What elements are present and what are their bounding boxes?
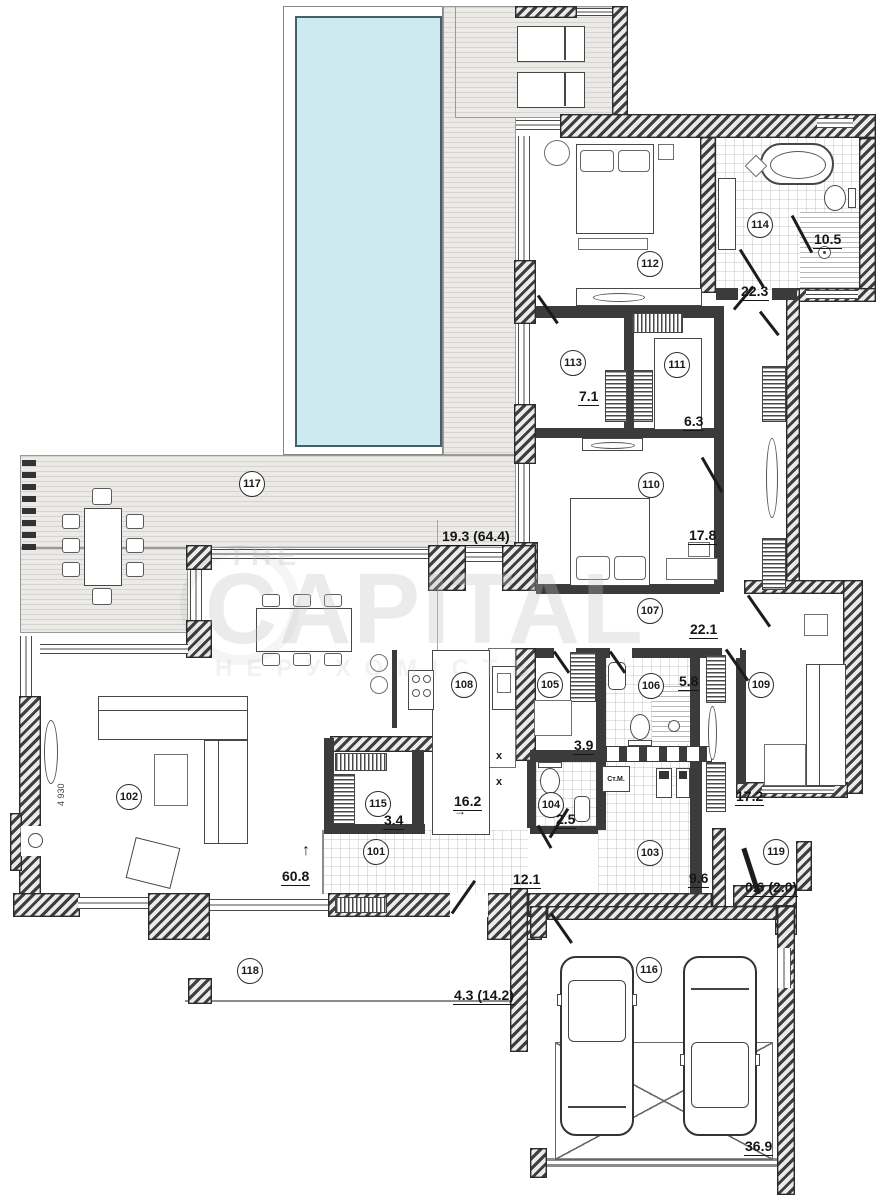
wall-segment — [510, 888, 528, 1052]
wall-segment — [612, 6, 628, 118]
area-label-117: 19.3 (64.4) — [441, 529, 511, 546]
wardrobe-rail — [632, 313, 683, 333]
area-label-116: 36.9 — [744, 1139, 773, 1156]
dining-chair — [324, 653, 342, 666]
room-circle-119: 119 — [763, 839, 789, 865]
window — [190, 570, 202, 620]
dining-chair — [324, 594, 342, 607]
car-cabin — [568, 980, 626, 1042]
wall-segment — [547, 906, 777, 920]
curtain-lens — [44, 720, 58, 784]
wardrobe-rail — [762, 366, 786, 422]
deck-step — [22, 496, 36, 502]
toilet-tank — [538, 762, 562, 768]
area-label-103: 9.6 — [688, 871, 709, 888]
wardrobe-rail — [335, 753, 387, 771]
car-mirror — [557, 994, 562, 1006]
window — [212, 549, 428, 559]
armchair — [126, 837, 181, 889]
window — [577, 8, 612, 16]
dining-chair — [262, 653, 280, 666]
wall-segment — [515, 6, 577, 18]
wardrobe-rail — [706, 762, 726, 812]
wall-segment — [744, 580, 848, 594]
mirror-lens — [708, 706, 717, 760]
pillow — [580, 150, 614, 172]
outdoor-chair — [92, 488, 112, 505]
appliance-mark: x — [496, 776, 508, 790]
wardrobe-rail — [570, 652, 596, 702]
fireplace-niche — [21, 826, 53, 856]
area-label-110: 17.8 — [688, 528, 717, 545]
dining-chair — [293, 653, 311, 666]
wall-segment — [19, 696, 41, 900]
mirror-lens — [593, 293, 645, 302]
wardrobe-rail — [605, 370, 627, 422]
area-label-112: 22.3 — [740, 284, 769, 301]
drain-dot — [823, 251, 826, 254]
wall-segment — [700, 137, 716, 293]
wall-segment — [188, 978, 212, 1004]
wardrobe-rail — [333, 774, 355, 824]
entry-arrow-icon: ↑ — [302, 842, 310, 860]
dimension-label: 4 930 — [56, 783, 66, 806]
room-circle-116: 116 — [636, 957, 662, 983]
car-mirror — [680, 1054, 685, 1066]
window — [817, 118, 853, 128]
wall-segment — [859, 138, 876, 294]
hallway-101-floor — [322, 830, 528, 894]
wall-segment — [514, 260, 536, 324]
wall-segment — [712, 828, 726, 908]
outdoor-chair — [62, 562, 80, 577]
toilet-tank — [628, 740, 652, 746]
laundry-unit — [676, 768, 690, 798]
toilet — [540, 768, 560, 794]
door-leaf — [759, 311, 780, 337]
deck-step — [22, 508, 36, 514]
wall-segment — [527, 760, 536, 828]
dining-table — [256, 608, 352, 652]
room-circle-114: 114 — [747, 212, 773, 238]
wall-segment — [428, 545, 466, 591]
room-circle-109: 109 — [748, 672, 774, 698]
room-circle-106: 106 — [638, 673, 664, 699]
room-circle-101: 101 — [363, 839, 389, 865]
room-circle-103: 103 — [637, 840, 663, 866]
room-circle-117: 117 — [239, 471, 265, 497]
window — [466, 552, 502, 562]
wall-segment — [148, 893, 210, 940]
bar-stool — [370, 676, 388, 694]
wardrobe-rail — [706, 655, 726, 703]
wall-segment — [536, 306, 716, 318]
wall-segment — [714, 306, 724, 430]
garage-door-line — [547, 1164, 777, 1167]
outdoor-table — [84, 508, 122, 586]
wall-segment — [13, 893, 80, 917]
window — [210, 899, 328, 911]
wall-segment — [843, 580, 863, 794]
bar-stool — [370, 654, 388, 672]
window — [762, 786, 834, 794]
deck-step — [22, 532, 36, 538]
deck-step — [22, 544, 36, 550]
wall-segment — [412, 750, 424, 826]
burner — [412, 689, 420, 697]
room-circle-110: 110 — [638, 472, 664, 498]
wall-segment — [530, 906, 547, 938]
deck-step — [22, 520, 36, 526]
dining-chair — [293, 594, 311, 607]
room-circle-112: 112 — [637, 251, 663, 277]
sofa-horizontal — [98, 696, 248, 740]
area-label-115: 3.4 — [383, 813, 404, 830]
car-mirror — [755, 1054, 760, 1066]
window — [40, 644, 188, 654]
wall-segment — [716, 288, 738, 300]
dresser — [576, 288, 702, 306]
unit-top — [659, 771, 669, 779]
area-label-107: 22.1 — [689, 622, 718, 639]
area-label-108: 16.2 — [453, 794, 482, 811]
dresser — [582, 438, 643, 451]
room-circle-105: 105 — [537, 672, 563, 698]
stove — [408, 670, 434, 710]
area-label-106: 5.8 — [678, 674, 699, 691]
sofa-seam — [218, 741, 219, 843]
wall-segment — [515, 648, 536, 761]
pillow — [576, 556, 610, 580]
area-label-104: 2.5 — [555, 812, 576, 829]
window — [516, 120, 560, 130]
toilet — [630, 714, 650, 740]
wall-segment — [690, 650, 700, 760]
pillow — [614, 556, 646, 580]
kitchen-sink — [492, 666, 516, 710]
wardrobe-rail — [762, 538, 786, 590]
window — [20, 636, 32, 696]
window — [777, 948, 791, 988]
area-label-101: 12.1 — [512, 872, 541, 889]
area-label-109: 17.2 — [735, 789, 764, 806]
deck-step — [22, 472, 36, 478]
deck-step — [22, 460, 36, 466]
area-label-114: 10.5 — [813, 232, 842, 249]
wall-segment — [596, 650, 606, 758]
wall-segment — [530, 1148, 547, 1178]
window — [518, 136, 530, 260]
outdoor-chair — [126, 514, 144, 529]
bar-counter — [392, 650, 397, 728]
burner — [423, 675, 431, 683]
area-label-102: 60.8 — [281, 869, 310, 886]
car-cabin — [691, 1042, 749, 1108]
cabinet — [534, 700, 572, 736]
door-leaf — [747, 595, 771, 628]
round-chair — [544, 140, 570, 166]
pillow — [618, 150, 650, 172]
sofa-seam — [819, 665, 820, 785]
outdoor-chair — [126, 562, 144, 577]
room-circle-118: 118 — [237, 958, 263, 984]
shower-drain — [668, 720, 680, 732]
area-label-113: 7.1 — [578, 389, 599, 406]
swimming-pool — [295, 16, 442, 447]
bathroom-vanity — [718, 178, 736, 250]
lounger-backrest-line — [564, 73, 566, 106]
deck-step — [22, 484, 36, 490]
area-label-118: 4.3 (14.2) — [453, 988, 515, 1005]
burner — [412, 675, 420, 683]
outdoor-chair — [62, 538, 80, 553]
lounger-backrest-line — [564, 27, 566, 60]
room-circle-102: 102 — [116, 784, 142, 810]
mirror-lens — [766, 438, 778, 518]
room-circle-108: 108 — [451, 672, 477, 698]
car-hood-line — [691, 988, 749, 990]
office-sofa — [806, 664, 846, 786]
bathtub — [760, 143, 834, 185]
floor-edge-line — [322, 830, 324, 894]
desk-chair — [804, 614, 828, 636]
appliance-mark: x — [496, 750, 508, 764]
burner — [423, 689, 431, 697]
wall-segment — [786, 288, 800, 592]
toilet-tank — [848, 188, 856, 208]
wall-segment — [772, 288, 797, 300]
wall-segment — [186, 545, 212, 570]
toilet — [824, 185, 846, 211]
laundry-unit — [656, 768, 672, 798]
coffee-table — [154, 754, 188, 806]
window — [78, 897, 148, 909]
bed-bench — [578, 238, 648, 250]
window — [518, 464, 530, 542]
room-circle-111: 111 — [664, 352, 690, 378]
sun-lounger — [517, 72, 585, 108]
wall-segment — [333, 824, 425, 834]
car-mirror — [632, 994, 637, 1006]
vent-wall — [598, 746, 712, 762]
area-label-105: 3.9 — [573, 738, 594, 755]
sink — [608, 662, 626, 690]
bench — [666, 558, 718, 580]
bathtub-inner — [770, 151, 826, 179]
car — [683, 956, 757, 1136]
area-label-111: 6.3 — [683, 414, 704, 431]
nightstand — [658, 144, 674, 160]
wall-segment — [796, 841, 812, 891]
outdoor-chair — [92, 588, 112, 605]
window — [806, 290, 858, 299]
sofa-vertical — [204, 740, 248, 844]
radiator-coil — [335, 897, 387, 913]
floor-plan: Ст.М. x x ↑ → 4 930 — [0, 0, 876, 1200]
wardrobe-rail — [633, 370, 653, 422]
room-circle-107: 107 — [637, 598, 663, 624]
outdoor-chair — [126, 538, 144, 553]
car-hood-line — [568, 1106, 626, 1108]
sun-lounger — [517, 26, 585, 62]
window — [518, 324, 530, 404]
wall-segment — [502, 545, 536, 591]
unit-top — [679, 771, 687, 779]
wall-segment — [514, 404, 536, 464]
side-table — [764, 744, 806, 786]
car — [560, 956, 634, 1136]
room-circle-113: 113 — [560, 350, 586, 376]
sink-bowl — [497, 673, 511, 693]
area-label-119: 0.6 (2.0) — [744, 880, 798, 897]
mirror-lens — [591, 442, 635, 449]
sofa-seam — [99, 710, 247, 711]
outdoor-chair — [62, 514, 80, 529]
washing-machine: Ст.М. — [602, 766, 630, 792]
dining-chair — [262, 594, 280, 607]
fireplace — [28, 833, 43, 848]
wall-segment — [186, 620, 212, 658]
